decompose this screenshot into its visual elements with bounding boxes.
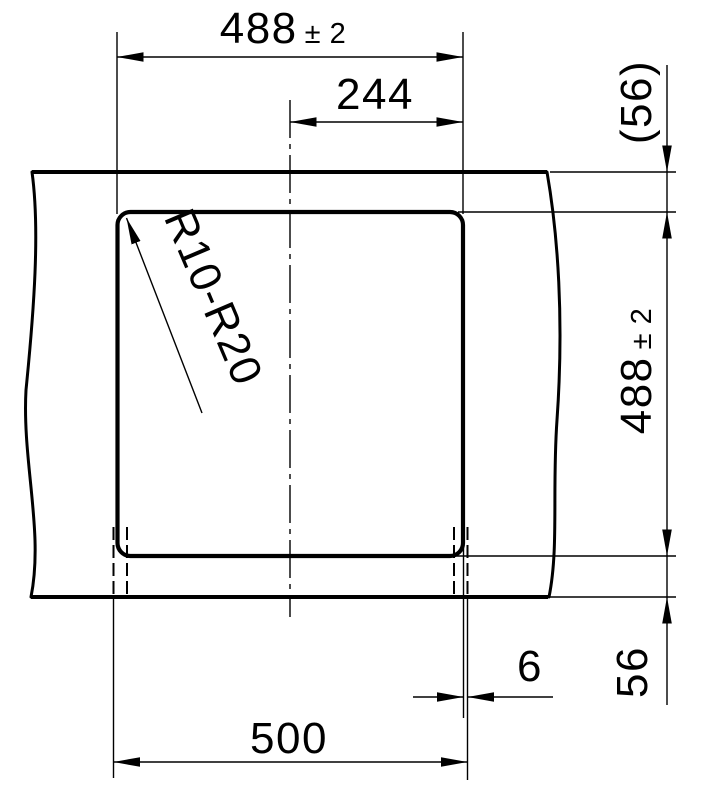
dim-label-gap: 6	[517, 642, 543, 691]
dimension-lines	[114, 57, 668, 762]
technical-drawing: 488± 2 244 R10-R20 488± 2 (56) 56 6 500	[0, 0, 711, 793]
break-line-right	[547, 172, 560, 597]
extension-lines	[114, 32, 677, 780]
dim-label-right-height: 488± 2	[612, 308, 661, 435]
dim-label-corner-radius: R10-R20	[154, 202, 272, 393]
dim-label-top-width: 488± 2	[220, 4, 347, 53]
dimension-labels: 488± 2 244 R10-R20 488± 2 (56) 56 6 500	[154, 4, 661, 763]
drawing-canvas: 488± 2 244 R10-R20 488± 2 (56) 56 6 500	[0, 0, 711, 793]
dim-label-right-top: (56)	[612, 60, 661, 144]
break-line-left	[26, 172, 36, 597]
countertop-outline	[26, 172, 561, 597]
dim-label-bottom-width: 500	[250, 714, 328, 763]
dim-label-right-bottom: 56	[608, 646, 657, 698]
dim-label-half-width: 244	[336, 70, 414, 119]
